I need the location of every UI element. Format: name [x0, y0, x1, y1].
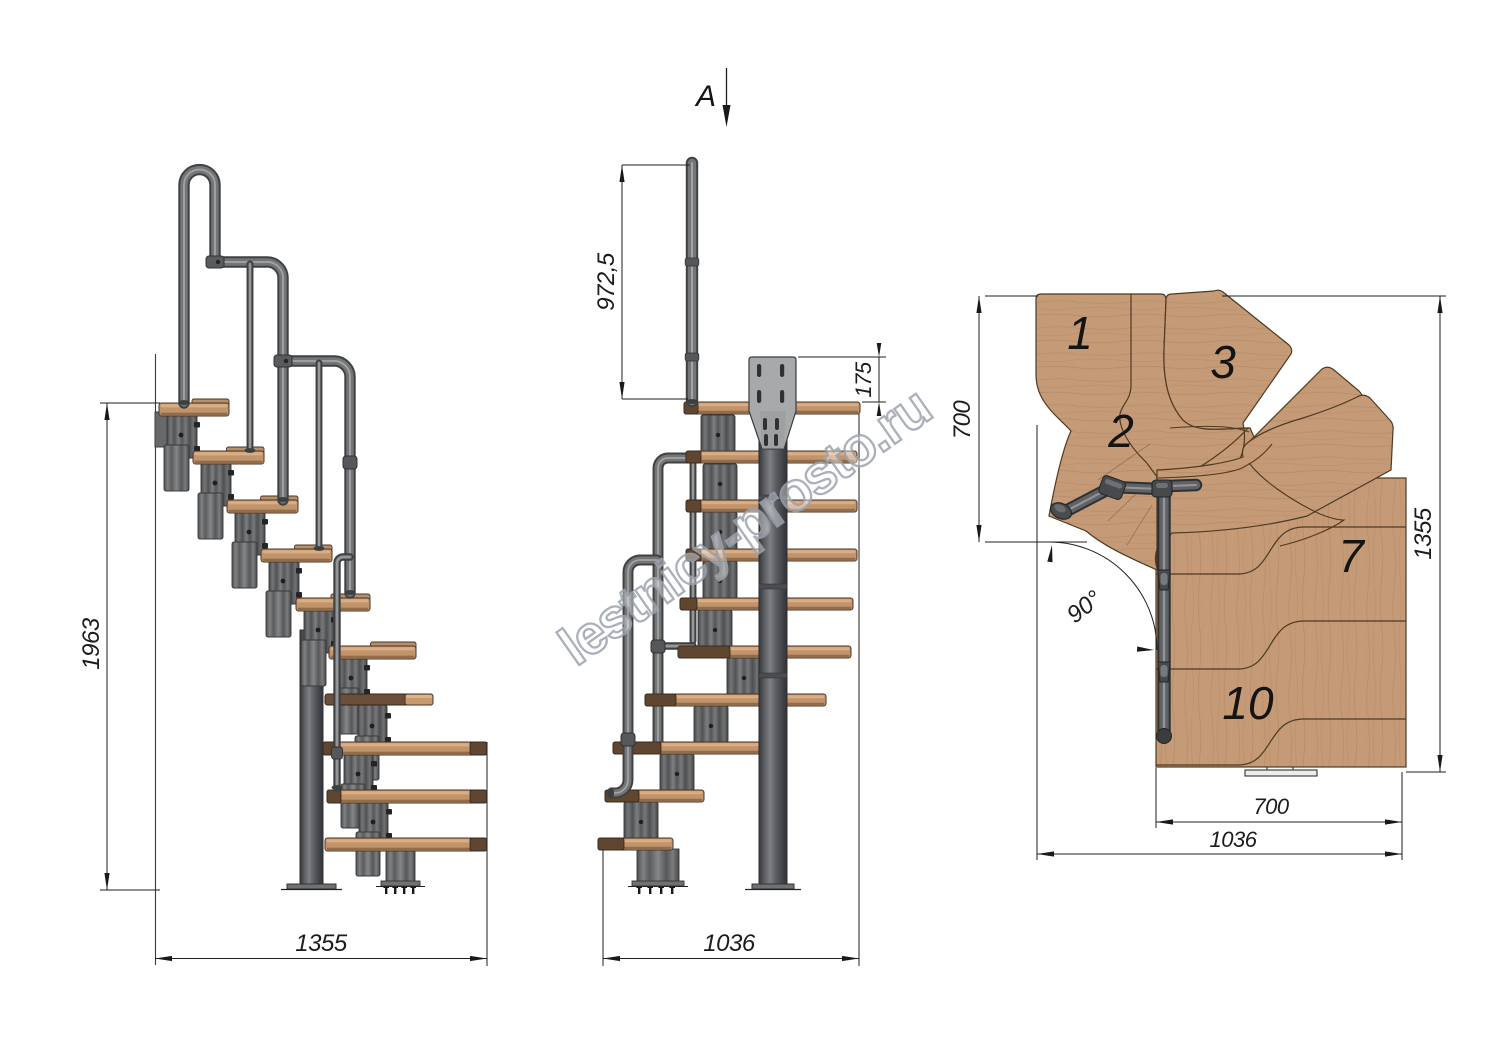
svg-text:175: 175: [851, 361, 876, 397]
svg-text:1963: 1963: [78, 617, 105, 670]
svg-text:972,5: 972,5: [593, 252, 620, 311]
svg-text:lestnicy-prosto.ru: lestnicy-prosto.ru: [547, 375, 941, 677]
svg-text:1: 1: [1067, 307, 1093, 359]
svg-text:10: 10: [1222, 677, 1274, 729]
svg-text:700: 700: [949, 400, 976, 440]
svg-text:1355: 1355: [295, 930, 348, 957]
svg-text:700: 700: [1253, 794, 1289, 819]
svg-text:7: 7: [1338, 530, 1365, 582]
svg-text:1355: 1355: [1410, 507, 1437, 560]
svg-text:3: 3: [1210, 336, 1236, 388]
svg-text:1036: 1036: [703, 930, 756, 957]
svg-text:2: 2: [1107, 405, 1134, 457]
svg-text:A: A: [694, 80, 716, 113]
svg-text:1036: 1036: [1210, 827, 1258, 852]
svg-text:90°: 90°: [1062, 585, 1108, 629]
